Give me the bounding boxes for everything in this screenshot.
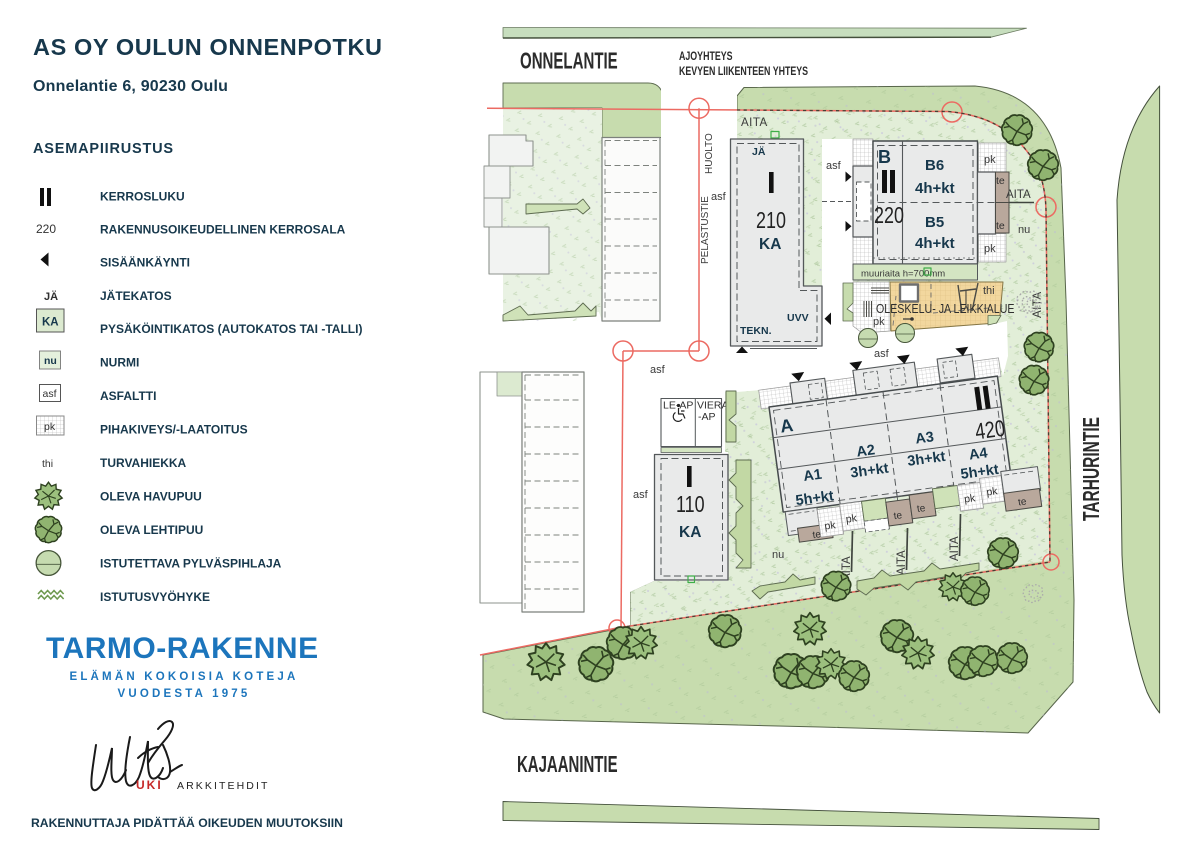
svg-text:TARHURINTIE: TARHURINTIE [1079, 417, 1105, 521]
svg-text:ISTUTETTAVA PYLVÄSPIHLAJA: ISTUTETTAVA PYLVÄSPIHLAJA [100, 556, 282, 571]
svg-text:KA: KA [679, 524, 701, 541]
svg-text:ELÄMÄN KOKOISIA KOTEJA: ELÄMÄN KOKOISIA KOTEJA [69, 670, 298, 683]
svg-text:RAKENNUTTAJA PIDÄTTÄÄ OIKEUDEN: RAKENNUTTAJA PIDÄTTÄÄ OIKEUDEN MUUTOKSII… [31, 815, 343, 830]
svg-text:asf: asf [711, 191, 727, 203]
svg-text:PELASTUSTIE: PELASTUSTIE [700, 196, 711, 264]
svg-text:UKI: UKI [136, 778, 163, 792]
svg-text:AITA: AITA [1006, 189, 1031, 201]
svg-text:Onnelantie 6, 90230 Oulu: Onnelantie 6, 90230 Oulu [33, 78, 228, 95]
svg-text:-AP: -AP [698, 411, 716, 423]
svg-text:4h+kt: 4h+kt [915, 180, 955, 197]
svg-text:AITA: AITA [741, 117, 768, 129]
svg-text:TARMO-RAKENNE: TARMO-RAKENNE [46, 632, 319, 665]
svg-text:pk: pk [873, 316, 885, 328]
svg-text:TEKN.: TEKN. [740, 325, 772, 337]
svg-text:KA: KA [759, 236, 781, 253]
svg-text:KAJAANINTIE: KAJAANINTIE [517, 752, 618, 778]
svg-text:asf: asf [826, 160, 842, 172]
svg-text:te: te [996, 175, 1005, 187]
svg-text:ASEMAPIIRUSTUS: ASEMAPIIRUSTUS [33, 141, 174, 157]
svg-text:ASFALTTI: ASFALTTI [100, 389, 156, 403]
svg-text:PYSÄKÖINTIKATOS (AUTOKATOS TAI: PYSÄKÖINTIKATOS (AUTOKATOS TAI -TALLI) [100, 321, 362, 336]
svg-text:OLEVA HAVUPUU: OLEVA HAVUPUU [100, 490, 202, 504]
svg-text:KA: KA [42, 317, 59, 329]
svg-text:B6: B6 [925, 157, 944, 174]
svg-text:pk: pk [44, 421, 56, 433]
svg-text:asf: asf [650, 364, 666, 376]
svg-text:nu: nu [44, 355, 57, 367]
svg-text:HUOLTO: HUOLTO [704, 133, 715, 174]
svg-text:JÄ: JÄ [44, 290, 58, 303]
svg-text:KERROSLUKU: KERROSLUKU [100, 190, 185, 204]
svg-text:A2: A2 [856, 442, 877, 460]
svg-text:AITA: AITA [949, 536, 961, 561]
svg-text:pk: pk [984, 243, 996, 255]
svg-text:AS OY OULUN ONNENPOTKU: AS OY OULUN ONNENPOTKU [33, 34, 383, 60]
svg-text:JÄ: JÄ [752, 145, 766, 158]
svg-text:KEVYEN LIIKENTEEN YHTEYS: KEVYEN LIIKENTEEN YHTEYS [679, 66, 808, 78]
svg-text:A: A [779, 415, 795, 437]
svg-text:ISTUTUSVYÖHYKE: ISTUTUSVYÖHYKE [100, 589, 210, 604]
svg-text:4h+kt: 4h+kt [915, 235, 955, 252]
svg-text:A1: A1 [802, 467, 823, 485]
svg-text:VUODESTA 1975: VUODESTA 1975 [118, 688, 251, 700]
svg-text:ARKKITEHDIT: ARKKITEHDIT [177, 780, 270, 792]
svg-text:asf: asf [633, 489, 649, 501]
svg-text:OLEVA LEHTIPUU: OLEVA LEHTIPUU [100, 523, 203, 537]
svg-text:PIHAKIVEYS/-LAATOITUS: PIHAKIVEYS/-LAATOITUS [100, 423, 248, 437]
svg-text:420: 420 [974, 416, 1007, 445]
svg-text:TURVAHIEKKA: TURVAHIEKKA [100, 456, 187, 470]
svg-text:NURMI: NURMI [100, 356, 139, 370]
svg-text:A3: A3 [914, 429, 935, 447]
svg-text:JÄTEKATOS: JÄTEKATOS [100, 288, 172, 303]
svg-text:SISÄÄNKÄYNTI: SISÄÄNKÄYNTI [100, 255, 190, 270]
svg-text:220: 220 [36, 222, 56, 236]
svg-text:OLESKELU- JA LEIKKIALUE: OLESKELU- JA LEIKKIALUE [876, 301, 1015, 316]
svg-text:AJOYHTEYS: AJOYHTEYS [679, 51, 733, 63]
svg-text:asf: asf [43, 388, 57, 400]
svg-text:210: 210 [756, 208, 786, 234]
svg-text:A4: A4 [968, 445, 989, 463]
svg-text:ONNELANTIE: ONNELANTIE [520, 48, 618, 74]
svg-text:thi: thi [983, 285, 995, 297]
svg-text:AITA: AITA [1032, 291, 1044, 318]
svg-text:110: 110 [676, 492, 705, 518]
svg-text:thi: thi [42, 458, 53, 470]
svg-text:nu: nu [1018, 224, 1030, 236]
svg-text:pk: pk [984, 154, 996, 166]
svg-text:te: te [996, 220, 1005, 232]
svg-text:UVV: UVV [787, 312, 809, 324]
svg-text:B: B [878, 147, 891, 167]
svg-text:muuriaita h=700mm: muuriaita h=700mm [861, 269, 945, 280]
svg-text:nu: nu [772, 549, 784, 561]
svg-text:B5: B5 [925, 214, 944, 231]
svg-text:RAKENNUSOIKEUDELLINEN KERROSAL: RAKENNUSOIKEUDELLINEN KERROSALA [100, 223, 346, 237]
svg-text:220: 220 [874, 203, 904, 229]
svg-text:asf: asf [874, 348, 890, 360]
svg-text:AITA: AITA [896, 550, 908, 575]
